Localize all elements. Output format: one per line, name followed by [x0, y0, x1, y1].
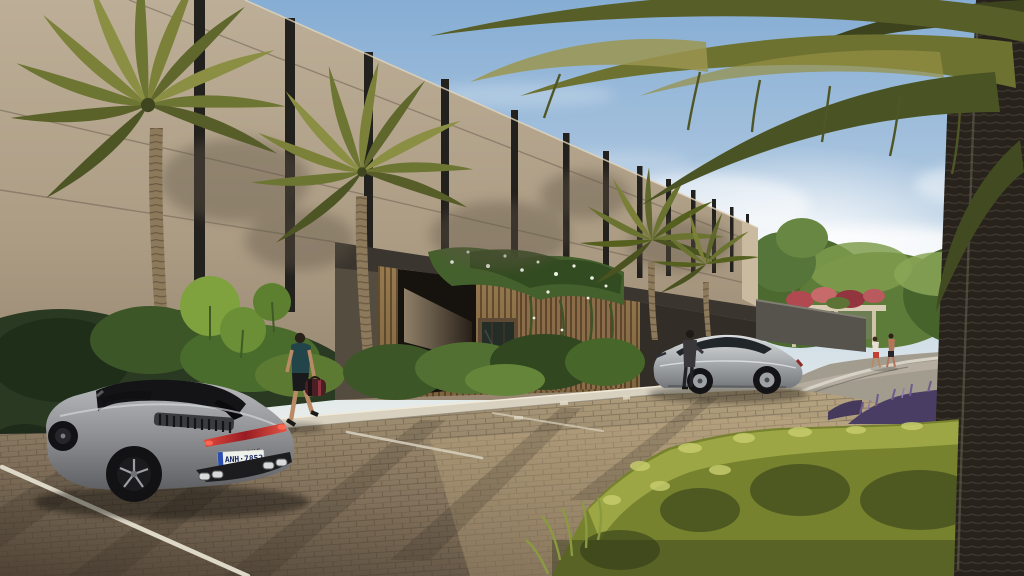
pavement-marking	[560, 401, 568, 406]
wheel-rear	[106, 446, 162, 502]
duffel-bag	[305, 377, 326, 396]
pavement-marking	[514, 416, 523, 420]
plate-eu-band	[218, 452, 224, 466]
architectural-render-scene: PORSCHE ANH·7852	[0, 0, 1024, 576]
pavement-marking	[623, 396, 630, 400]
scene-canvas: PORSCHE ANH·7852	[0, 0, 1024, 576]
wheel-front	[48, 421, 78, 451]
suv-wheel-rear	[753, 366, 781, 394]
man-head	[295, 333, 305, 343]
man-tshirt	[291, 343, 311, 373]
